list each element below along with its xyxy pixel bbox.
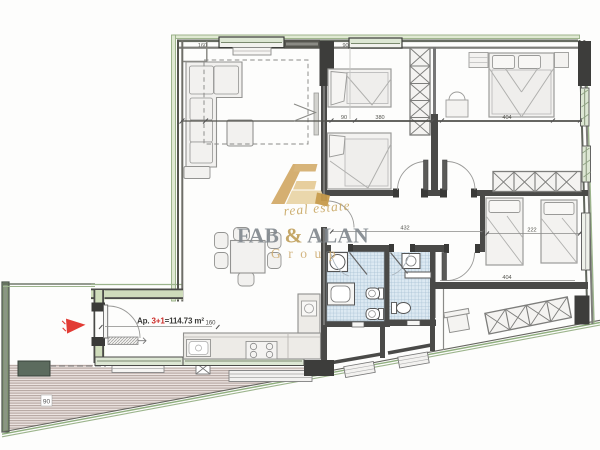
- svg-text:404: 404: [502, 275, 511, 281]
- svg-text:Ap. 3+1=114.73 m²: Ap. 3+1=114.73 m²: [137, 317, 204, 326]
- svg-text:90: 90: [341, 115, 347, 121]
- svg-text:FAB & ALAN: FAB & ALAN: [237, 224, 369, 248]
- svg-text:160: 160: [198, 43, 207, 49]
- svg-text:90: 90: [43, 399, 51, 406]
- svg-text:160: 160: [205, 321, 216, 327]
- svg-text:Group: Group: [271, 246, 343, 261]
- svg-text:380: 380: [375, 115, 384, 121]
- svg-text:432: 432: [400, 226, 409, 232]
- svg-text:90: 90: [342, 43, 348, 49]
- svg-text:404: 404: [502, 115, 511, 121]
- svg-text:222: 222: [527, 228, 536, 234]
